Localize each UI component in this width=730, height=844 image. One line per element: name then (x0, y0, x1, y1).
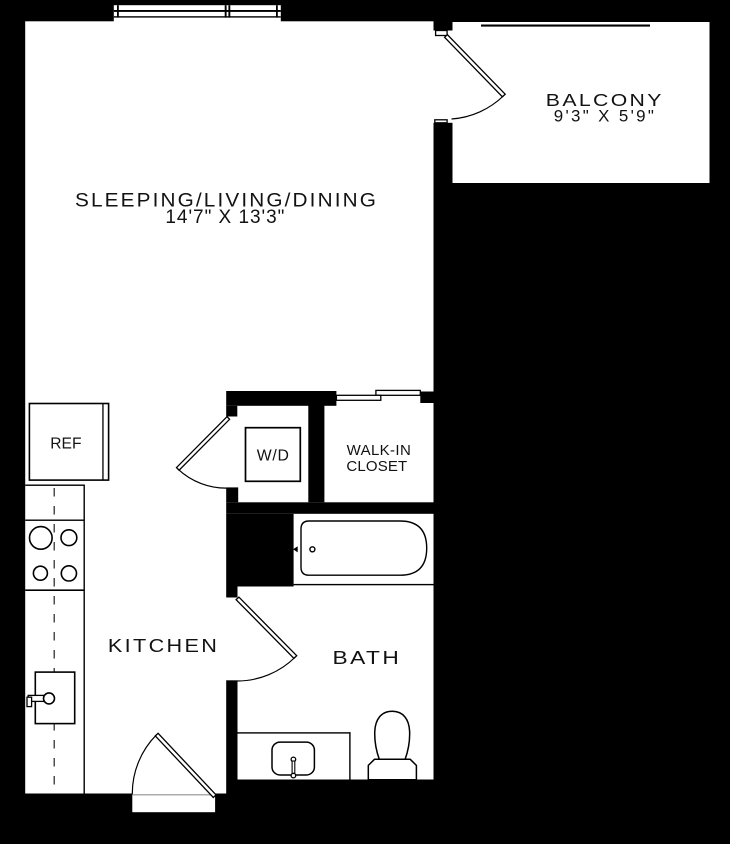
svg-text:CLOSET: CLOSET (346, 458, 407, 475)
svg-text:9'3" X 5'9": 9'3" X 5'9" (554, 106, 657, 125)
svg-text:W/D: W/D (257, 448, 290, 465)
svg-text:KITCHEN: KITCHEN (108, 636, 219, 656)
svg-text:BATH: BATH (333, 648, 402, 669)
svg-text:REF: REF (50, 435, 81, 452)
svg-text:WALK-IN: WALK-IN (347, 442, 412, 459)
svg-text:14'7" X 13'3": 14'7" X 13'3" (165, 207, 285, 228)
